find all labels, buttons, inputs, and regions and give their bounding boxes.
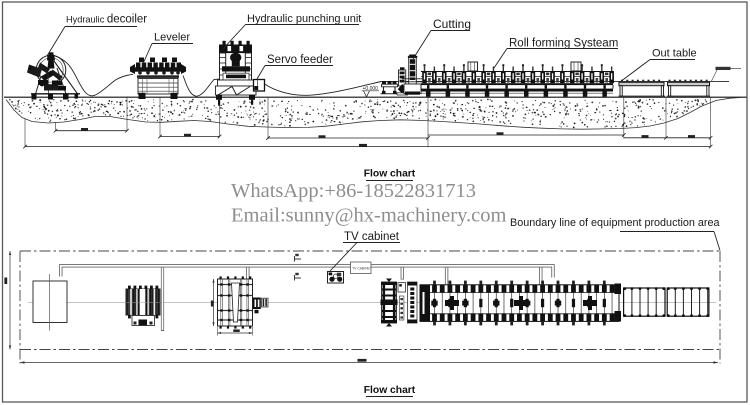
svg-text:Hydraulic punching unit: Hydraulic punching unit (247, 13, 361, 25)
svg-text:TV cabinet: TV cabinet (344, 231, 400, 243)
svg-text:TV CABINET: TV CABINET (352, 267, 371, 271)
svg-text:Flow chart: Flow chart (364, 169, 416, 180)
svg-text:Leveler: Leveler (154, 32, 190, 44)
svg-text:Out table: Out table (652, 48, 697, 60)
svg-text:Flow chart: Flow chart (364, 385, 416, 396)
svg-text:Roll forming Systeam: Roll forming Systeam (509, 37, 618, 49)
svg-text:Boundary line of equipment pro: Boundary line of equipment production ar… (510, 217, 719, 229)
svg-text:Email:sunny@hx-machinery.com: Email:sunny@hx-machinery.com (231, 205, 506, 227)
svg-text:Cutting: Cutting (433, 17, 471, 31)
svg-text:Servo feeder: Servo feeder (267, 54, 333, 66)
svg-text:WhatsApp:+86-18522831713: WhatsApp:+86-18522831713 (231, 180, 476, 202)
svg-text:Hydraulic decoiler: Hydraulic decoiler (66, 14, 147, 26)
